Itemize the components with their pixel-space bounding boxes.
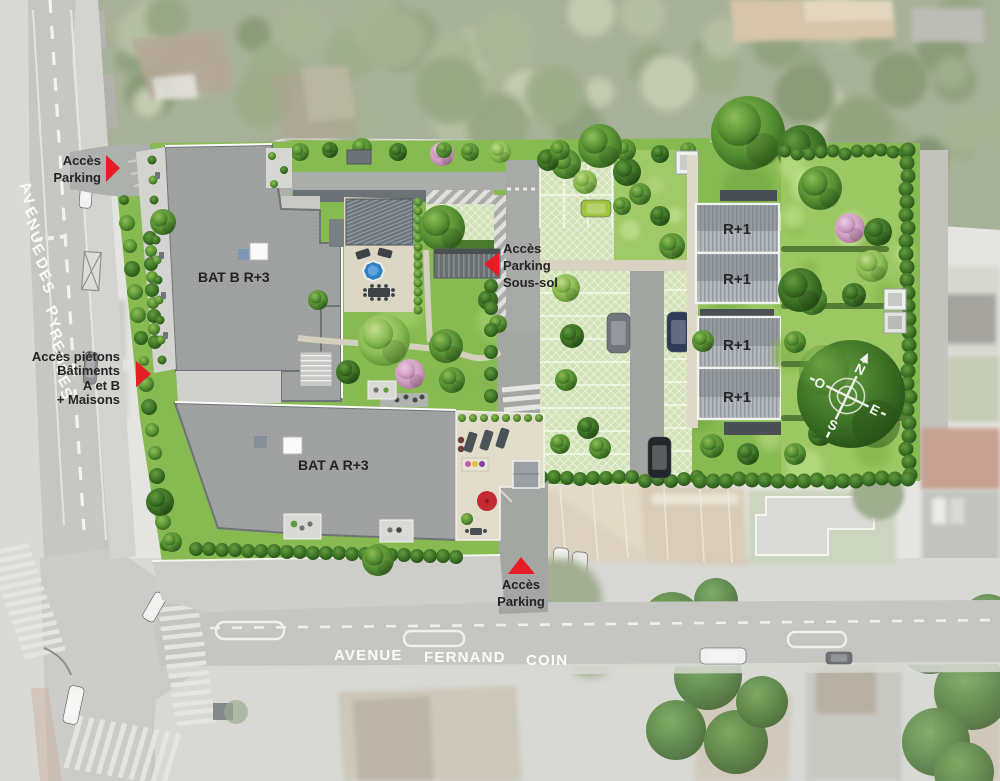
svg-text:+ Maisons: + Maisons	[57, 392, 120, 407]
svg-text:R+1: R+1	[723, 389, 751, 406]
svg-text:Accès: Accès	[502, 577, 540, 592]
svg-text:BAT A R+3: BAT A R+3	[298, 457, 369, 473]
svg-text:R+1: R+1	[723, 221, 751, 238]
svg-text:COIN: COIN	[526, 652, 568, 669]
svg-text:Accès: Accès	[63, 153, 101, 168]
svg-text:Bâtiments: Bâtiments	[57, 363, 120, 378]
svg-text:BAT B R+3: BAT B R+3	[198, 269, 270, 285]
svg-text:FERNAND: FERNAND	[424, 649, 506, 666]
svg-text:Parking: Parking	[503, 258, 551, 273]
svg-text:Accès piétons: Accès piétons	[32, 349, 120, 364]
svg-text:R+1: R+1	[723, 337, 751, 354]
svg-text:R+1: R+1	[723, 271, 751, 288]
svg-text:Parking: Parking	[53, 170, 101, 185]
svg-text:AVENUE: AVENUE	[334, 647, 403, 664]
svg-text:Accès: Accès	[503, 241, 541, 256]
svg-text:A et B: A et B	[83, 378, 120, 393]
svg-text:Sous-sol: Sous-sol	[503, 275, 558, 290]
svg-text:Parking: Parking	[497, 594, 545, 609]
